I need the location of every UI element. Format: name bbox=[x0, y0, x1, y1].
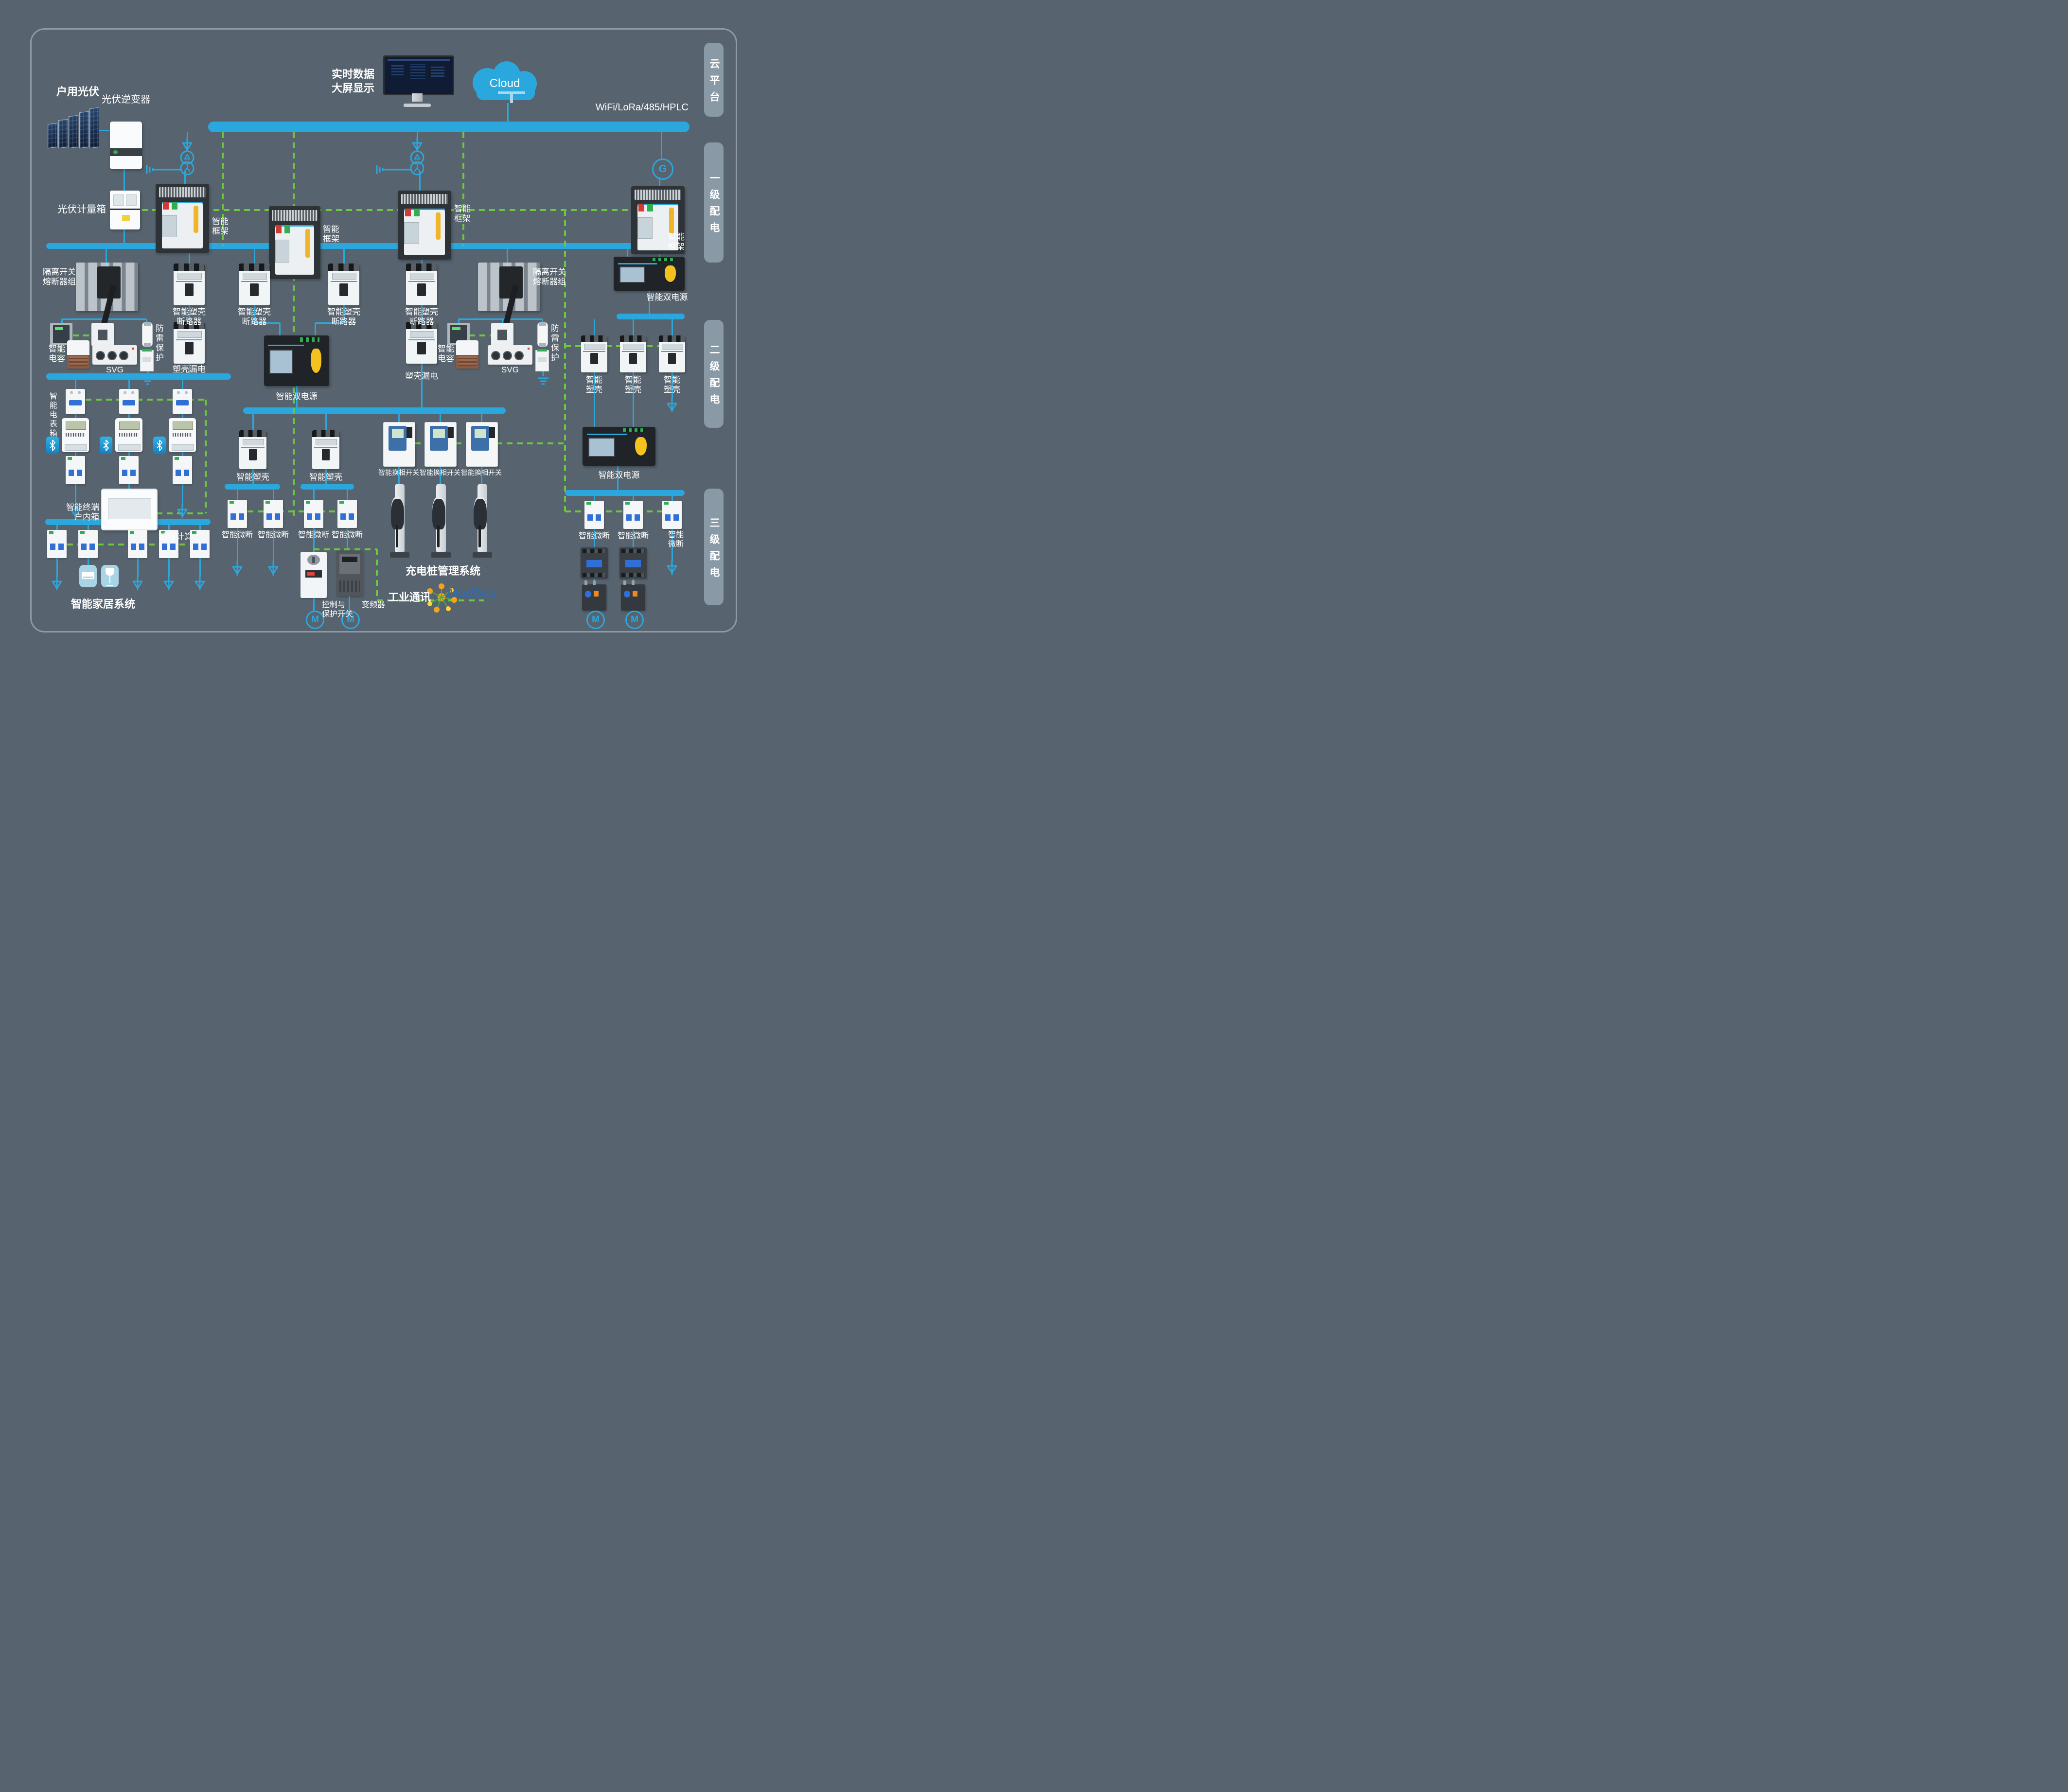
power-line bbox=[343, 249, 345, 264]
meter-rcbo-2 bbox=[119, 456, 139, 484]
power-line bbox=[315, 323, 316, 336]
section-pill-1: 一级配电 bbox=[704, 142, 724, 263]
power-line bbox=[75, 380, 76, 389]
smart-mccb-4 bbox=[406, 264, 437, 305]
contactor-1 bbox=[581, 547, 608, 579]
power-line bbox=[347, 490, 348, 500]
frame-breaker-3-label: 智能 框架 bbox=[454, 204, 471, 224]
comm-line bbox=[205, 400, 207, 513]
iso-label-2: 隔离开关 熔断器组 bbox=[533, 267, 566, 287]
frame-breaker-1 bbox=[156, 184, 209, 253]
comm-line bbox=[376, 549, 378, 600]
pv-meterbox-label: 光伏计量箱 bbox=[57, 204, 106, 216]
dual-power-ats-center bbox=[264, 335, 329, 386]
power-line bbox=[137, 558, 139, 577]
power-line bbox=[325, 414, 327, 430]
smart-meter-2 bbox=[115, 418, 142, 452]
power-line bbox=[199, 558, 201, 577]
meterbox-vlabel: 智能电表箱 bbox=[47, 392, 56, 438]
level2-bus-right bbox=[617, 314, 685, 319]
meter-main-switch-1 bbox=[66, 389, 85, 414]
dual-power-ats-center-label: 智能双电源 bbox=[276, 392, 318, 402]
mini-breaker-c4 bbox=[337, 500, 357, 528]
comm-line bbox=[564, 210, 566, 511]
comm-title: 工业通讯 bbox=[388, 590, 431, 604]
phase-change-switch-1 bbox=[383, 422, 415, 467]
smart-mccb-4-label: 智能塑壳 断路器 bbox=[405, 307, 438, 327]
thermal-relay-1 bbox=[582, 584, 606, 611]
smart-mccb-r1 bbox=[581, 335, 607, 372]
mini-breaker-c2 bbox=[264, 500, 283, 528]
frame-breaker-2 bbox=[269, 206, 320, 279]
charging-pile-3 bbox=[471, 484, 494, 558]
surge-protector-1 bbox=[140, 350, 154, 371]
charging-pile-1 bbox=[388, 484, 411, 558]
power-line bbox=[633, 496, 634, 501]
home-rcbo-3 bbox=[128, 530, 147, 558]
indoor-terminal-box bbox=[101, 489, 158, 530]
screen-title: 实时数据 大屏显示 bbox=[332, 67, 374, 95]
smart-mccb-r1-label: 智能 塑壳 bbox=[586, 375, 602, 395]
distribution-diagram: 智能 框架智能 框架智能 框架智能 框架智能塑壳 断路器智能塑壳 断路器智能塑壳… bbox=[0, 0, 752, 651]
surge-protector-2 bbox=[535, 350, 549, 371]
power-line bbox=[313, 598, 315, 612]
isolator-fuse-group-2 bbox=[478, 263, 540, 311]
contactor-2 bbox=[619, 547, 647, 579]
solar-panels bbox=[48, 108, 100, 148]
power-line bbox=[182, 484, 183, 506]
lamp-icon bbox=[101, 565, 119, 587]
charging-title: 充电桩管理系统 bbox=[406, 564, 480, 578]
power-line bbox=[594, 496, 595, 501]
control-protect-switch-label: 控制与 保护开关 bbox=[322, 601, 353, 619]
dual-power-ats-right-top bbox=[614, 257, 685, 291]
home-rcbo-5 bbox=[190, 530, 210, 558]
power-line bbox=[88, 558, 89, 565]
wifi-label: WiFi/LoRa/485/HPLC bbox=[596, 102, 689, 114]
smart-mccb-r2-label: 智能 塑壳 bbox=[625, 375, 641, 395]
power-line bbox=[594, 319, 595, 335]
smart-capacitor-1 bbox=[67, 340, 89, 369]
frame-breaker-1-label: 智能 框架 bbox=[212, 217, 229, 236]
power-line bbox=[254, 249, 255, 264]
power-line bbox=[421, 364, 423, 407]
smart-mccb-1-label: 智能塑壳 断路器 bbox=[173, 307, 206, 327]
fuse-2 bbox=[537, 322, 548, 347]
mini-breaker-r1-label: 智能微断 bbox=[579, 532, 610, 541]
dual-power-ats-right-top-label: 智能双电源 bbox=[647, 293, 688, 302]
ground-icon bbox=[141, 371, 154, 386]
comm-line bbox=[142, 209, 631, 211]
thermal-relay-2 bbox=[621, 584, 645, 611]
transformer-icon bbox=[179, 150, 195, 177]
smart-mccb-r2 bbox=[620, 335, 646, 372]
mini-breaker-c1-label: 智能微断 bbox=[222, 531, 253, 540]
leakage-mccb-2-label: 塑壳漏电 bbox=[405, 371, 438, 381]
smart-mccb-c1 bbox=[239, 430, 266, 469]
indoor-box-label: 智能终端 户内箱 bbox=[66, 503, 99, 522]
feeder-arrow-icon bbox=[132, 576, 143, 592]
lightning-label-2: 防雷保护 bbox=[549, 324, 559, 363]
comm-line bbox=[565, 510, 678, 512]
main-cloud-bus bbox=[208, 122, 689, 132]
meter-main-switch-2 bbox=[119, 389, 139, 414]
home-rcbo-2 bbox=[78, 530, 98, 558]
level1-bus bbox=[46, 243, 642, 249]
bluetooth-icon bbox=[100, 437, 112, 454]
leakage-mccb-1-label: 塑壳漏电 bbox=[173, 365, 206, 374]
mini-breaker-c4-label: 智能微断 bbox=[332, 531, 363, 540]
current-transformer-1 bbox=[91, 323, 114, 346]
modbus-text: Modbus bbox=[447, 586, 497, 601]
mini-breaker-r2 bbox=[623, 501, 643, 529]
edge-computing-label: 边缘计算 bbox=[159, 532, 193, 542]
comm-line bbox=[293, 132, 295, 516]
power-line bbox=[313, 490, 315, 500]
smart-mccb-3 bbox=[328, 264, 359, 305]
feeder-arrow-icon bbox=[51, 576, 63, 592]
smart-capacitor-2 bbox=[456, 340, 478, 369]
section-pill-label: 三级配电 bbox=[707, 511, 721, 583]
leakage-mccb-1 bbox=[174, 322, 205, 364]
power-line bbox=[88, 525, 89, 530]
smart-mccb-r3-label: 智能 塑壳 bbox=[664, 375, 680, 395]
smart-meter-1 bbox=[62, 418, 89, 452]
minibus-a bbox=[225, 484, 280, 490]
lightning-label-1: 防雷保护 bbox=[154, 324, 163, 363]
frame-breaker-2-label: 智能 框架 bbox=[323, 225, 339, 244]
meter-rcbo-3 bbox=[173, 456, 192, 484]
power-line bbox=[75, 452, 76, 456]
power-line bbox=[128, 414, 130, 418]
pv-inverter bbox=[110, 122, 142, 169]
phase-change-switch-2 bbox=[424, 422, 457, 467]
power-line bbox=[168, 525, 170, 530]
charging-pile-2 bbox=[429, 484, 453, 558]
mini-breaker-r2-label: 智能微断 bbox=[618, 532, 649, 541]
smart-meter-3 bbox=[169, 418, 196, 452]
smart-mccb-r3 bbox=[659, 335, 685, 372]
smart-mccb-1 bbox=[174, 264, 205, 305]
power-line bbox=[672, 496, 673, 501]
dashboard-monitor bbox=[383, 55, 451, 107]
pv-meter-box bbox=[110, 191, 140, 229]
air-conditioner-icon bbox=[79, 565, 97, 587]
meter-rcbo-1 bbox=[66, 456, 85, 484]
level3-bus-right bbox=[565, 490, 685, 496]
phase-change-switch-1-label: 智能换相开关 bbox=[378, 469, 419, 477]
smart-mccb-c2 bbox=[312, 430, 339, 469]
section-pill-label: 云平台 bbox=[707, 52, 721, 108]
smart-mccb-2 bbox=[239, 264, 270, 305]
section-pill-label: 二级配电 bbox=[707, 338, 721, 410]
power-line bbox=[128, 380, 130, 389]
power-line bbox=[252, 414, 254, 430]
frequency-inverter-label: 变频器 bbox=[362, 601, 385, 610]
smart-mccb-c1-label: 智能塑壳 bbox=[236, 473, 269, 482]
home-rcbo-1 bbox=[47, 530, 67, 558]
feeder-arrow-icon bbox=[267, 561, 279, 578]
pv-title: 户用光伏 bbox=[56, 85, 99, 99]
power-line bbox=[440, 414, 441, 422]
bluetooth-icon bbox=[46, 437, 59, 454]
mini-breaker-r3-label: 智能 微断 bbox=[668, 531, 684, 549]
smart-mccb-3-label: 智能塑壳 断路器 bbox=[327, 307, 360, 327]
section-pill-0: 云平台 bbox=[704, 43, 724, 117]
feeder-arrow-icon bbox=[231, 561, 243, 578]
fuse-1 bbox=[142, 322, 153, 347]
power-line bbox=[199, 525, 201, 530]
section-pill-2: 二级配电 bbox=[704, 320, 724, 428]
ground-icon bbox=[376, 163, 411, 176]
motor-icon: M bbox=[586, 611, 605, 629]
smart-mccb-c2-label: 智能塑壳 bbox=[309, 473, 342, 482]
mini-breaker-r3 bbox=[662, 501, 682, 529]
mini-breaker-c3-label: 智能微断 bbox=[298, 531, 329, 540]
ground-icon bbox=[537, 371, 549, 386]
pv-inverter-label: 光伏逆变器 bbox=[102, 94, 150, 106]
power-line bbox=[279, 323, 281, 336]
power-line bbox=[182, 414, 183, 418]
power-line bbox=[627, 249, 628, 257]
phase-change-switch-2-label: 智能换相开关 bbox=[420, 469, 460, 477]
power-line bbox=[182, 380, 183, 389]
control-protect-switch bbox=[300, 552, 327, 598]
power-line bbox=[124, 229, 125, 246]
dual-power-ats-right-low-label: 智能双电源 bbox=[599, 471, 640, 480]
power-line bbox=[128, 452, 130, 456]
section-pill-3: 三级配电 bbox=[704, 489, 724, 605]
cap-label-1: 智能 电容 bbox=[49, 344, 65, 364]
phase-change-switch-3-label: 智能换相开关 bbox=[461, 469, 502, 477]
power-line bbox=[633, 319, 634, 335]
mini-breaker-c1 bbox=[228, 500, 247, 528]
power-line bbox=[237, 490, 238, 500]
power-line bbox=[481, 414, 482, 422]
transformer-icon bbox=[409, 150, 425, 177]
power-line bbox=[168, 558, 170, 577]
smart-mccb-2-label: 智能塑壳 断路器 bbox=[238, 307, 271, 327]
feeder-arrow-icon bbox=[177, 504, 188, 520]
comm-line bbox=[73, 334, 92, 336]
power-line bbox=[124, 168, 125, 191]
frequency-inverter bbox=[336, 550, 363, 596]
isolator-fuse-group-1 bbox=[76, 263, 138, 311]
power-line bbox=[398, 414, 400, 422]
comm-line bbox=[469, 334, 491, 336]
dual-power-ats-right-low bbox=[583, 427, 655, 466]
level2-bus-center bbox=[243, 407, 506, 414]
phase-change-switch-3 bbox=[466, 422, 498, 467]
minibus-b bbox=[300, 484, 354, 490]
power-line bbox=[182, 452, 183, 456]
feeder-arrow-icon bbox=[163, 576, 175, 592]
leakage-mccb-2 bbox=[406, 322, 437, 364]
power-line bbox=[56, 558, 58, 577]
power-line bbox=[672, 319, 673, 335]
power-line bbox=[507, 103, 509, 122]
current-transformer-2 bbox=[491, 323, 513, 346]
cloud-label: Cloud bbox=[490, 77, 520, 90]
mini-breaker-c3 bbox=[304, 500, 323, 528]
mini-breaker-r1 bbox=[584, 501, 604, 529]
home-title: 智能家居系统 bbox=[71, 597, 135, 611]
motor-icon: M bbox=[625, 611, 644, 629]
feeder-arrow-icon bbox=[666, 398, 678, 414]
comm-line bbox=[237, 510, 347, 512]
power-line bbox=[459, 318, 542, 320]
power-line bbox=[273, 490, 274, 500]
power-line bbox=[56, 525, 58, 530]
mini-breaker-c2-label: 智能微断 bbox=[258, 531, 289, 540]
power-line bbox=[661, 132, 662, 158]
feeder-arrow-icon bbox=[666, 560, 678, 577]
section-pill-label: 一级配电 bbox=[707, 166, 721, 239]
feeder-arrow-icon bbox=[194, 576, 206, 592]
frame-breaker-3 bbox=[398, 191, 451, 260]
generator-icon: G bbox=[652, 158, 673, 180]
bluetooth-icon bbox=[153, 437, 166, 454]
meter-main-switch-3 bbox=[173, 389, 192, 414]
ground-icon bbox=[146, 163, 181, 176]
frame-breaker-4-label: 智能 框架 bbox=[668, 232, 685, 252]
power-line bbox=[75, 414, 76, 418]
cap-label-2: 智能 电容 bbox=[438, 344, 454, 364]
power-line bbox=[99, 130, 111, 131]
comm-line bbox=[462, 132, 464, 246]
iso-label-1: 隔离开关 熔断器组 bbox=[43, 267, 76, 287]
